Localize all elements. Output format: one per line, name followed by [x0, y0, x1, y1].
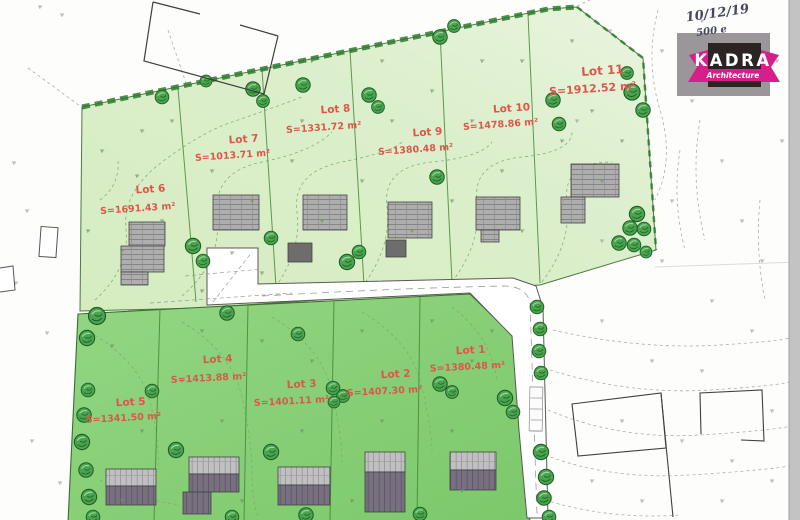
svg-text:Lot 5: Lot 5: [115, 396, 145, 410]
scan-edge: [789, 0, 800, 520]
svg-text:Lot 9: Lot 9: [412, 125, 443, 139]
svg-text:Lot 11: Lot 11: [581, 62, 624, 79]
parking-strip: [529, 387, 543, 431]
kadra-logo: KADRA Architecture: [677, 33, 780, 96]
svg-text:Lot 7: Lot 7: [228, 132, 259, 146]
svg-text:Lot 8: Lot 8: [320, 102, 351, 116]
svg-text:Lot 1: Lot 1: [455, 344, 485, 358]
site-plan: KADRA Architecture 10/12/19 500 e Lot 1 …: [0, 0, 800, 520]
logo-brand-text: KADRA: [694, 51, 771, 70]
svg-text:Lot 4: Lot 4: [202, 353, 232, 367]
svg-text:Lot 2: Lot 2: [380, 368, 410, 382]
svg-text:Lot 6: Lot 6: [135, 182, 166, 196]
logo-subtitle-text: Architecture: [706, 71, 760, 80]
svg-text:Lot 3: Lot 3: [286, 378, 316, 392]
